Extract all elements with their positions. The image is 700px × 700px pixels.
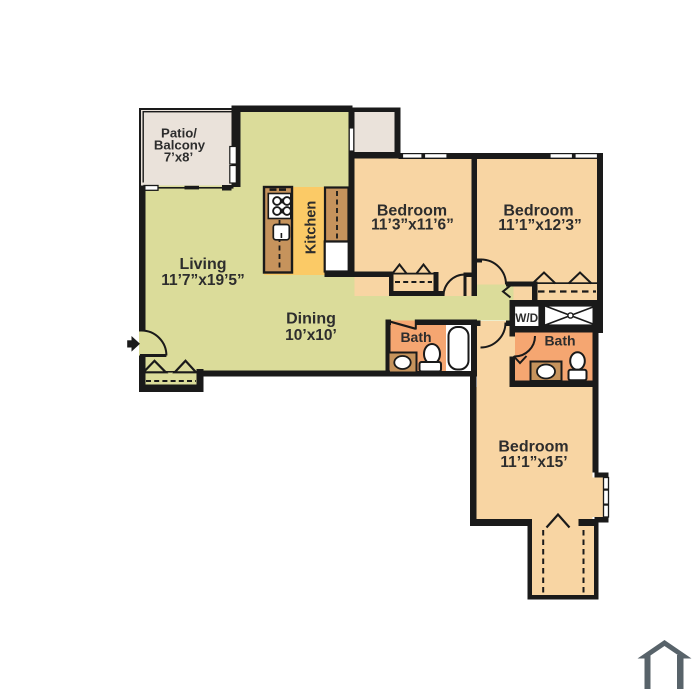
svg-text:Living: Living [179, 256, 226, 273]
svg-text:Bath: Bath [544, 333, 575, 349]
svg-text:11’1”x15’: 11’1”x15’ [500, 454, 567, 471]
svg-text:Kitchen: Kitchen [304, 201, 320, 255]
svg-text:Bedroom: Bedroom [498, 438, 568, 455]
svg-text:11’3”x11’6”: 11’3”x11’6” [371, 217, 454, 234]
svg-text:Dining: Dining [286, 311, 336, 328]
svg-text:11’7”x19’5”: 11’7”x19’5” [161, 272, 245, 289]
svg-text:7’x8’: 7’x8’ [164, 150, 193, 165]
svg-text:10’x10’: 10’x10’ [285, 327, 337, 344]
svg-text:11’1”x12’3”: 11’1”x12’3” [498, 217, 582, 234]
svg-text:Bath: Bath [400, 329, 431, 345]
svg-text:W/D: W/D [515, 311, 538, 325]
